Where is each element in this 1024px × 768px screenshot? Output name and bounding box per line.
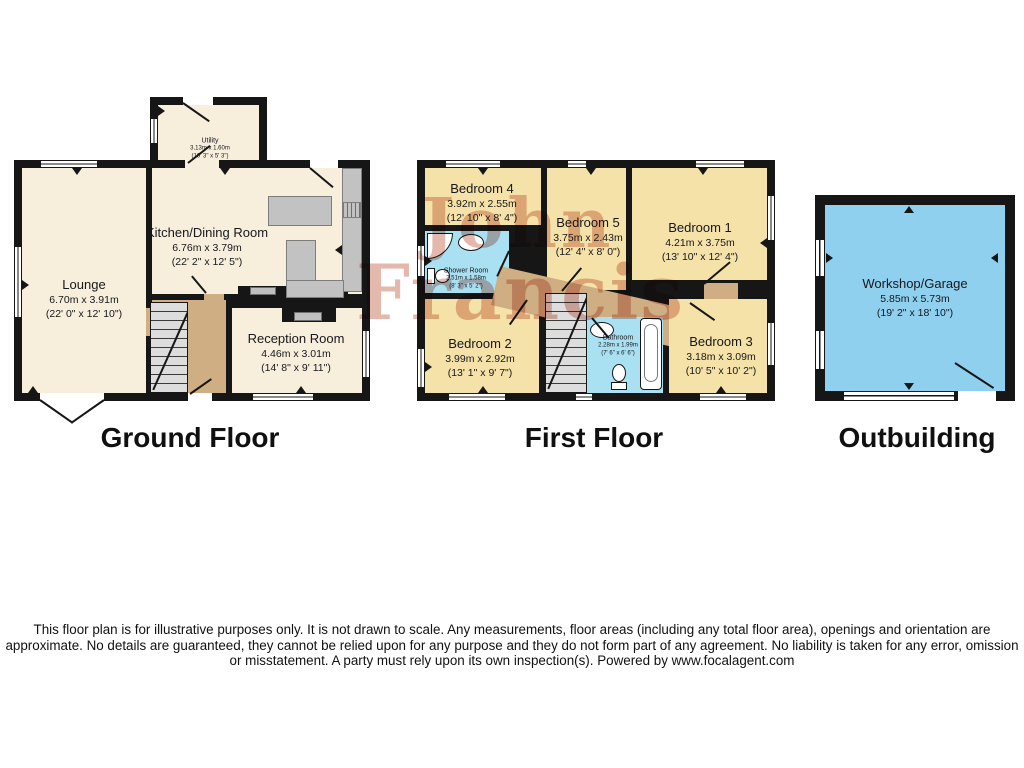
dimension-arrow (296, 386, 306, 393)
room-name: Bedroom 2 (445, 336, 514, 353)
stair-line (547, 295, 587, 389)
dimension-arrow (478, 168, 488, 175)
window (362, 330, 370, 378)
room-dim-metric: 3.92m x 2.55m (447, 198, 517, 212)
toilet-icon (612, 364, 626, 382)
room-dim-metric: 4.46m x 3.01m (248, 348, 345, 362)
dimension-arrow (826, 253, 833, 263)
landing-door-opening (704, 283, 738, 299)
room-label: Bedroom 1 4.21m x 3.75m (13' 10" x 12' 4… (662, 220, 738, 264)
window (567, 160, 587, 168)
door-opening (958, 391, 996, 401)
disclaimer-body: This floor plan is for illustrative purp… (5, 622, 1018, 668)
room-dim-imperial: (22' 0" x 12' 10") (46, 307, 122, 321)
dimension-arrow (22, 280, 29, 290)
room-dim-imperial: (22' 2" x 12' 5") (146, 255, 268, 269)
room-label: Lounge 6.70m x 3.91m (22' 0" x 12' 10") (46, 277, 122, 321)
dishwasher-icon (343, 202, 361, 218)
room-dim-imperial: (12' 10" x 8' 4") (447, 211, 517, 225)
dimension-arrow (72, 168, 82, 175)
room-label: Bedroom 4 3.92m x 2.55m (12' 10" x 8' 4"… (447, 181, 517, 225)
room-name: Bedroom 1 (662, 220, 738, 237)
room-dim-imperial: (13' 10" x 12' 4") (662, 250, 738, 264)
window (575, 393, 593, 401)
room-dim-metric: 6.70m x 3.91m (46, 294, 122, 308)
stairs (545, 293, 587, 393)
window (14, 246, 22, 318)
french-door-swing (39, 399, 73, 424)
dimension-arrow (220, 168, 230, 175)
stairs (150, 302, 188, 393)
room-name: Lounge (46, 277, 122, 294)
room-name: Bedroom 4 (447, 181, 517, 198)
door-opening (188, 393, 212, 401)
room-dim-metric: 3.18m x 3.09m (686, 351, 756, 365)
room-dim-imperial: (10' 3" x 5' 3") (190, 154, 230, 162)
dimension-arrow (335, 245, 342, 255)
room-label: Bedroom 3 3.18m x 3.09m (10' 5" x 10' 2"… (686, 334, 756, 378)
door-opening (310, 160, 338, 168)
dimension-arrow (478, 386, 488, 393)
outbuilding-title: Outbuilding (787, 422, 1024, 454)
dimension-arrow (904, 383, 914, 390)
room-label: Utility 3.13m x 1.60m (10' 3" x 5' 3") (190, 137, 230, 162)
dimension-arrow (425, 362, 432, 372)
room-name: Kitchen/Dining Room (146, 225, 268, 242)
room-name: Shower Room (444, 267, 488, 276)
dimension-arrow (716, 386, 726, 393)
room-dim-metric: 6.76m x 3.79m (146, 242, 268, 256)
room-dim-metric: 5.85m x 5.73m (862, 293, 967, 307)
room-name: Bedroom 5 (553, 215, 622, 232)
stair-line (152, 302, 188, 390)
window (445, 160, 501, 168)
dimension-arrow (28, 386, 38, 393)
room-dim-imperial: (14' 8" x 9' 11") (248, 361, 345, 375)
window (252, 393, 314, 401)
room-dim-imperial: (19' 2" x 18' 10") (862, 306, 967, 320)
room-dim-metric: 3.99m x 2.92m (445, 353, 514, 367)
window (448, 393, 506, 401)
room-label: Shower Room 2.51m x 1.58m (8' 3" x 5' 2"… (444, 267, 488, 292)
room-name: Bathroom (598, 334, 638, 343)
room-label: Bedroom 5 3.75m x 2.43m (12' 4" x 8' 0") (553, 215, 622, 259)
dimension-arrow (760, 238, 767, 248)
door-opening (183, 97, 213, 105)
dimension-arrow (904, 206, 914, 213)
dimension-arrow (698, 168, 708, 175)
kitchen-hall-opening (204, 294, 224, 300)
toilet-icon (611, 382, 627, 390)
room-dim-metric: 3.13m x 1.60m (190, 146, 230, 154)
first-floor-title: First Floor (464, 422, 724, 454)
window (699, 393, 747, 401)
window (815, 239, 825, 277)
ground-floor-title: Ground Floor (60, 422, 320, 454)
kitchen-counter (342, 168, 362, 292)
room-dim-metric: 3.75m x 2.43m (553, 232, 622, 246)
room-dim-metric: 2.28m x 1.99m (598, 343, 638, 351)
window (815, 330, 825, 370)
room-label: Kitchen/Dining Room 6.76m x 3.79m (22' 2… (146, 225, 268, 269)
room-label: Bathroom 2.28m x 1.99m (7' 6" x 6' 6") (598, 334, 638, 359)
room-dim-metric: 2.51m x 1.58m (444, 276, 488, 284)
room-name: Utility (190, 137, 230, 146)
garage-door-opening (843, 391, 955, 401)
room-dim-imperial: (13' 1" x 9' 7") (445, 366, 514, 380)
room-label: Workshop/Garage 5.85m x 5.73m (19' 2" x … (862, 276, 967, 320)
window (40, 160, 98, 168)
room-dim-metric: 4.21m x 3.75m (662, 237, 738, 251)
dimension-arrow (586, 168, 596, 175)
room-name: Reception Room (248, 331, 345, 348)
room-dim-imperial: (8' 3" x 5' 2") (444, 284, 488, 292)
room-name: Bedroom 3 (686, 334, 756, 351)
window (417, 245, 425, 277)
disclaimer-text: This floor plan is for illustrative purp… (4, 622, 1020, 669)
sink-icon (458, 234, 484, 251)
window (417, 348, 425, 388)
floorplan-canvas: Utility 3.13m x 1.60m (10' 3" x 5' 3") K… (0, 0, 1024, 768)
window (767, 322, 775, 366)
bathtub-icon (644, 324, 658, 382)
room-label: Bedroom 2 3.99m x 2.92m (13' 1" x 9' 7") (445, 336, 514, 380)
french-door-opening (40, 393, 104, 401)
kitchen-counter (286, 280, 344, 298)
fireplace-icon (250, 287, 276, 295)
room-dim-imperial: (12' 4" x 8' 0") (553, 245, 622, 259)
dimension-arrow (158, 106, 165, 116)
room-name: Workshop/Garage (862, 276, 967, 293)
window (695, 160, 745, 168)
french-door-swing (71, 399, 105, 424)
toilet-icon (427, 268, 435, 284)
room-dim-imperial: (10' 5" x 10' 2") (686, 364, 756, 378)
window (767, 195, 775, 241)
dimension-arrow (991, 253, 998, 263)
window (150, 118, 158, 144)
dimension-arrow (425, 256, 432, 266)
room-dim-imperial: (7' 6" x 6' 6") (598, 351, 638, 359)
fireplace-icon (294, 312, 322, 321)
room-label: Reception Room 4.46m x 3.01m (14' 8" x 9… (248, 331, 345, 375)
kitchen-island (268, 196, 332, 226)
